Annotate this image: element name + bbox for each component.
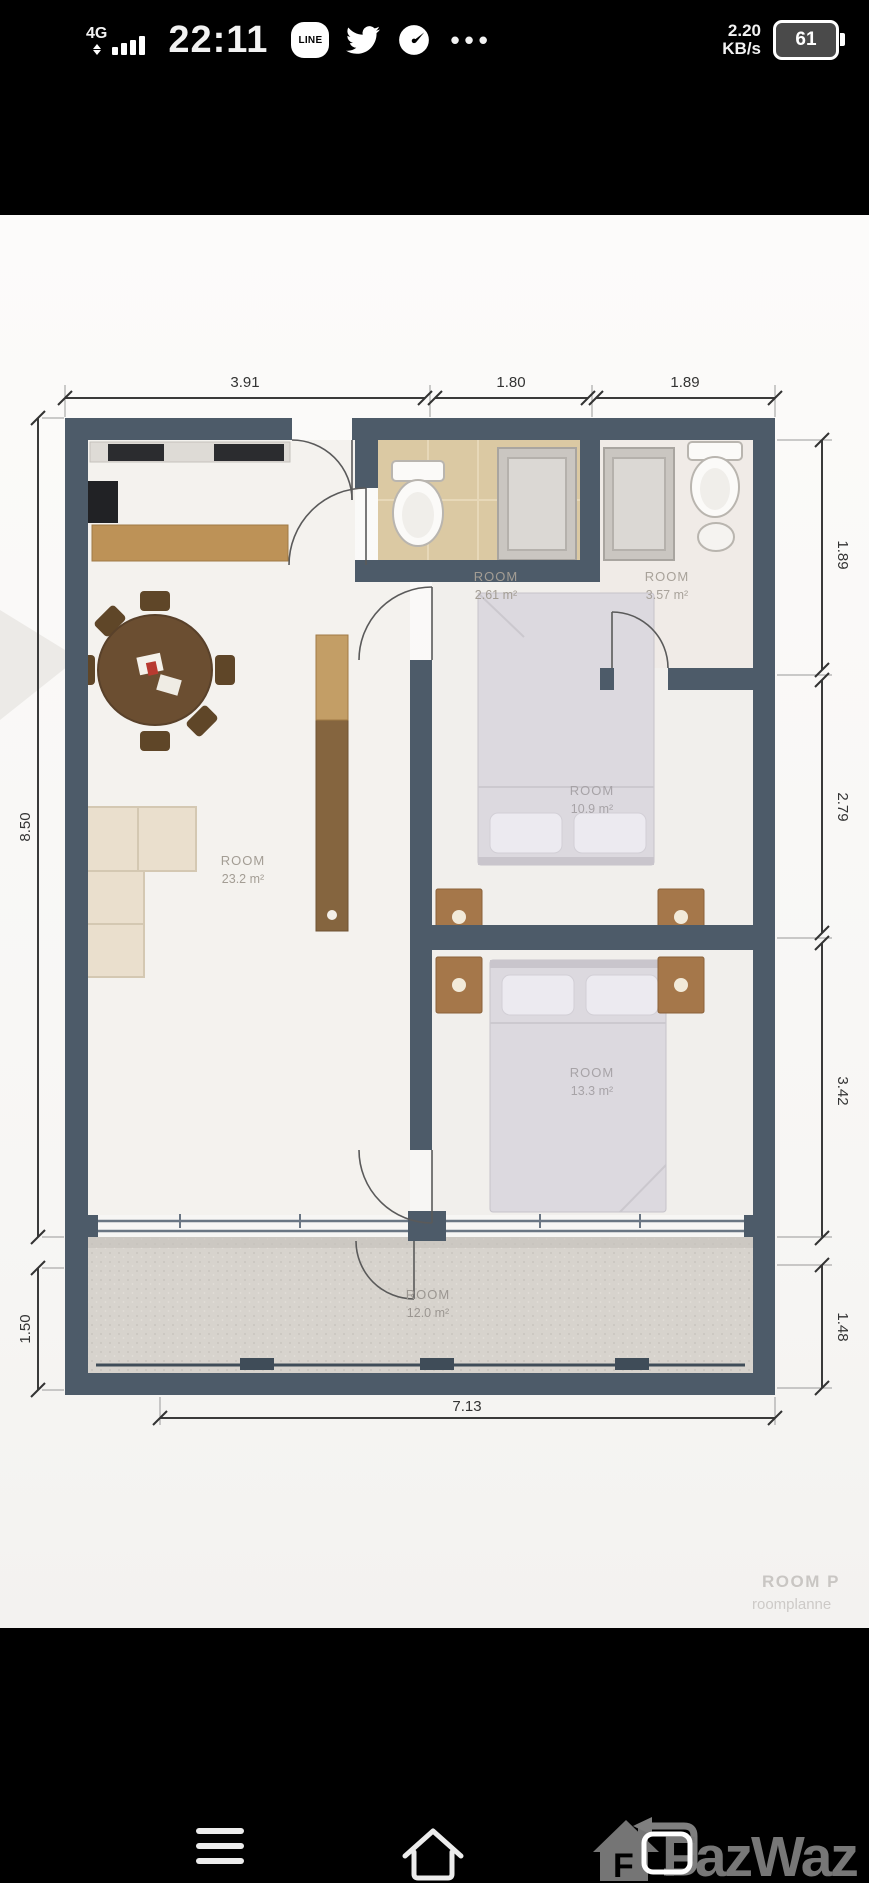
twitter-icon (346, 23, 380, 57)
line-app-icon: LINE (291, 22, 329, 58)
status-right-cluster: 2.20 KB/s 61 (722, 20, 839, 60)
dim-left-1: 8.50 (17, 812, 34, 841)
signal-indicator: 4G (86, 26, 145, 55)
roomplanner-watermark: ROOM P roomplanne (752, 1572, 840, 1613)
dim-top-2: 1.80 (496, 374, 525, 391)
home-button[interactable] (405, 1831, 461, 1878)
dim-right-3: 3.42 (834, 1076, 851, 1105)
fazwaz-logo: F FazWaz (593, 1817, 857, 1883)
floor-plan-photo[interactable]: 3.91 1.80 1.89 7.13 8.50 1.50 1.89 2.79 … (0, 215, 869, 1628)
toilet-bathroom-right (688, 442, 742, 517)
dim-top-1: 3.91 (230, 374, 259, 391)
svg-text:ROOM P: ROOM P (762, 1572, 840, 1591)
android-nav-bar: F FazWaz (0, 1790, 869, 1883)
svg-text:ROOM: ROOM (645, 569, 689, 584)
svg-text:23.2 m²: 23.2 m² (222, 872, 264, 886)
signal-bars-icon (112, 35, 145, 55)
dim-top-3: 1.89 (670, 374, 699, 391)
data-updown-icon (93, 44, 101, 55)
svg-text:13.3 m²: 13.3 m² (571, 1084, 613, 1098)
battery-indicator: 61 (773, 20, 839, 60)
shower-bathroom-left (498, 448, 576, 560)
svg-text:ROOM: ROOM (221, 853, 265, 868)
dim-bottom-1: 7.13 (452, 1398, 481, 1415)
fazwaz-logo-letter: F (613, 1847, 634, 1883)
status-left-cluster: 4G 22:11 LINE ••• (86, 19, 493, 62)
svg-text:3.57 m²: 3.57 m² (646, 588, 688, 602)
more-notifications-icon: ••• (450, 25, 492, 56)
svg-text:ROOM: ROOM (474, 569, 518, 584)
svg-text:ROOM: ROOM (570, 783, 614, 798)
compass-notification-icon (397, 23, 431, 57)
svg-text:ROOM: ROOM (570, 1065, 614, 1080)
svg-text:12.0 m²: 12.0 m² (407, 1306, 449, 1320)
dim-right-4: 1.48 (834, 1312, 851, 1341)
network-type-label: 4G (86, 26, 107, 42)
status-clock: 22:11 (168, 19, 268, 62)
shower-bathroom-right (604, 448, 674, 560)
dim-left-2: 1.50 (17, 1314, 34, 1343)
kitchen-counter (92, 525, 288, 561)
dim-right-1: 1.89 (834, 540, 851, 569)
status-bar: 4G 22:11 LINE ••• 2.20 KB/s (0, 0, 869, 80)
svg-text:ROOM: ROOM (406, 1287, 450, 1302)
svg-text:10.9 m²: 10.9 m² (571, 802, 613, 816)
bed-middle-bedroom (478, 593, 654, 865)
network-speed: 2.20 KB/s (722, 22, 761, 59)
menu-button[interactable] (196, 1828, 244, 1864)
tv-cabinet (316, 635, 348, 931)
svg-text:2.61 m²: 2.61 m² (475, 588, 517, 602)
svg-text:roomplanne: roomplanne (752, 1596, 831, 1613)
sink-bathroom-right (698, 523, 734, 551)
toilet-bathroom-left (392, 461, 444, 546)
dim-right-2: 2.79 (834, 792, 851, 821)
phone-screen: 4G 22:11 LINE ••• 2.20 KB/s (0, 0, 869, 1883)
